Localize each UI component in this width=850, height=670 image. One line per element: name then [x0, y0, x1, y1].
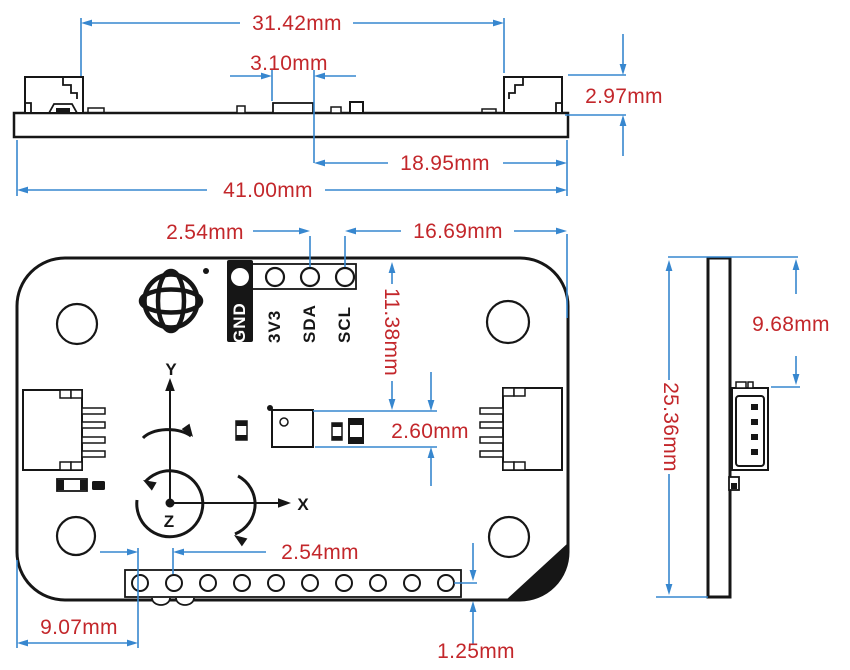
dim-board-width: 41.00mm — [223, 179, 313, 202]
dim-bottom-pin-pitch: 2.54mm — [281, 541, 359, 564]
pin-label-sda: SDA — [300, 304, 319, 343]
imu-chip — [267, 405, 313, 447]
side-connector — [732, 382, 768, 470]
fiducial-dot — [203, 268, 209, 274]
edge-components — [237, 102, 363, 113]
dim-top-pin-pitch: 2.54mm — [166, 221, 244, 244]
pin-hole-gnd — [231, 268, 249, 286]
pcb-dimension-diagram: 31.42mm 3.10mm 2.97mm 18.95mm 41.00mm — [0, 0, 850, 670]
side-view: 9.68mm 25.36mm — [656, 257, 830, 597]
right-connector-profile — [482, 77, 562, 113]
board-edge-profile — [14, 113, 568, 137]
dim-top-edge-to-chip: 11.38mm — [380, 288, 403, 376]
dim-board-height: 25.36mm — [659, 382, 682, 472]
panel-mouse-bite — [152, 598, 170, 605]
top-profile-view: 31.42mm 3.10mm 2.97mm 18.95mm 41.00mm — [14, 12, 663, 202]
pin-hole-3v3 — [266, 268, 284, 286]
dim-left-edge-to-pin1: 9.07mm — [40, 616, 118, 639]
pin-label-gnd: GND — [230, 302, 249, 343]
pin1-dot — [267, 405, 273, 411]
pin-hole-sda — [301, 268, 319, 286]
chip-profile — [273, 103, 313, 113]
dim-scl-to-right-edge: 16.69mm — [413, 220, 503, 243]
pin-hole-scl — [336, 268, 354, 286]
dim-pin-row-to-bottom-edge: 1.25mm — [437, 640, 515, 663]
board-side-profile — [708, 258, 730, 597]
dim-connector-span: 31.42mm — [252, 12, 342, 35]
left-connector-profile — [25, 77, 104, 113]
dim-chip-height: 2.60mm — [391, 420, 469, 443]
panel-mouse-bite — [176, 598, 194, 605]
diagram-canvas: 31.42mm 3.10mm 2.97mm 18.95mm 41.00mm — [0, 0, 850, 670]
axis-label-z: Z — [164, 512, 174, 531]
axis-label-y: Y — [165, 360, 177, 379]
dim-chip-to-right-edge: 18.95mm — [400, 152, 490, 175]
dim-connector-height: 2.97mm — [585, 85, 663, 108]
axis-origin-dot — [166, 499, 175, 508]
mounting-hole-top-left — [57, 304, 97, 344]
dim-chip-width: 3.10mm — [250, 52, 328, 75]
mounting-hole-top-right — [487, 301, 529, 343]
dim-top-to-connector: 9.68mm — [752, 313, 830, 336]
axis-label-x: X — [297, 495, 309, 514]
side-small-component — [729, 477, 739, 490]
mounting-hole-bottom-right — [489, 517, 529, 557]
front-pcb-view: GND 3V3 SDA SCL — [17, 220, 568, 663]
mounting-hole-bottom-left — [57, 517, 95, 555]
pin-label-scl: SCL — [335, 306, 354, 343]
pin-label-3v3: 3V3 — [265, 310, 284, 343]
